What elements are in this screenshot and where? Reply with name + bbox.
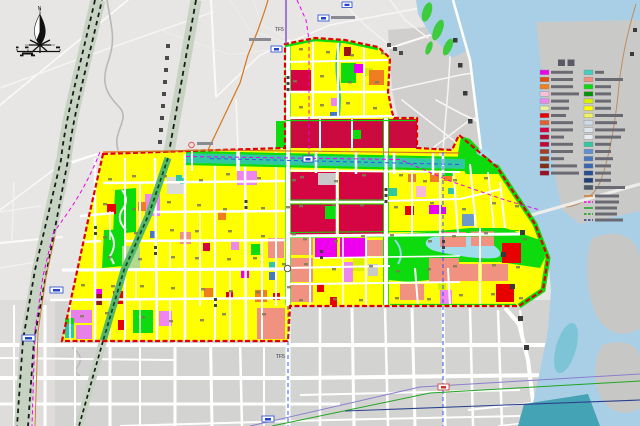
svg-text:TF5: TF5 — [276, 354, 285, 360]
svg-text:TF5: TF5 — [275, 27, 284, 33]
svg-text:N: N — [38, 6, 42, 12]
